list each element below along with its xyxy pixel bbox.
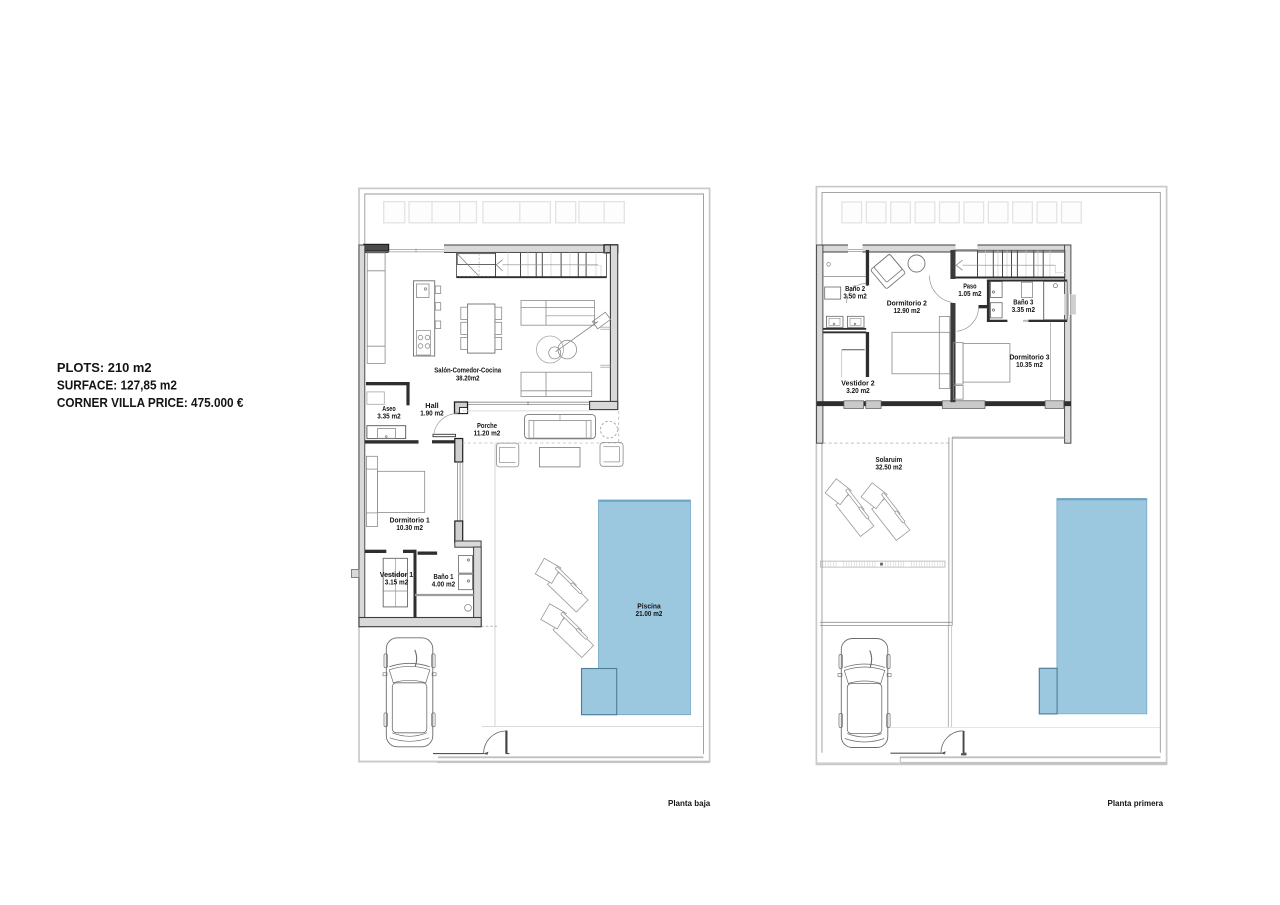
svg-text:4.00 m2: 4.00 m2 (432, 580, 455, 589)
svg-text:1.05 m2: 1.05 m2 (958, 289, 981, 298)
svg-text:10.35 m2: 10.35 m2 (1016, 360, 1043, 369)
svg-text:1.90 m2: 1.90 m2 (420, 409, 443, 418)
svg-text:SURFACE: 127,85 m2: SURFACE: 127,85 m2 (57, 377, 177, 392)
svg-text:38.20m2: 38.20m2 (456, 373, 479, 382)
svg-text:3.15 m2: 3.15 m2 (385, 578, 408, 587)
svg-text:Planta baja: Planta baja (668, 799, 711, 808)
svg-text:CORNER VILLA PRICE: 475.000 €: CORNER VILLA PRICE: 475.000 € (57, 395, 244, 410)
svg-text:12.90 m2: 12.90 m2 (893, 306, 920, 315)
svg-text:Planta primera: Planta primera (1108, 799, 1164, 808)
svg-text:PLOTS: 210 m2: PLOTS: 210 m2 (57, 360, 152, 375)
svg-text:10.30 m2: 10.30 m2 (396, 523, 423, 532)
svg-text:3.50 m2: 3.50 m2 (843, 292, 866, 301)
svg-text:3.35 m2: 3.35 m2 (377, 412, 400, 421)
svg-text:3.35 m2: 3.35 m2 (1012, 305, 1035, 314)
svg-text:21.00 m2: 21.00 m2 (636, 609, 663, 618)
svg-text:3.20 m2: 3.20 m2 (846, 386, 869, 395)
svg-text:32.50 m2: 32.50 m2 (875, 463, 902, 472)
svg-text:11.20 m2: 11.20 m2 (474, 429, 501, 438)
